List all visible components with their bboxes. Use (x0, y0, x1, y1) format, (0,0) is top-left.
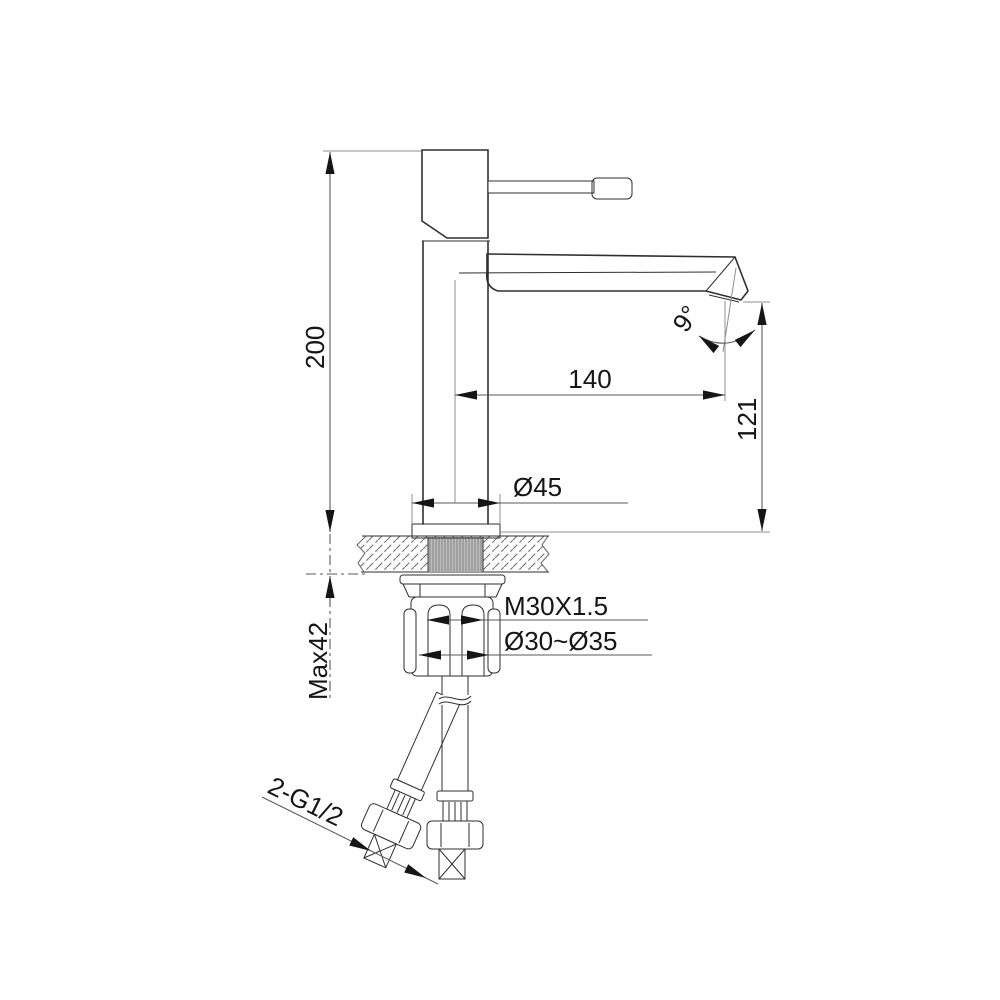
dim-max-thickness: Max42 (303, 534, 368, 700)
hose-hex-nut-right (427, 821, 483, 849)
supply-hose-right (427, 676, 483, 879)
faucet-handle (422, 150, 490, 241)
mounting-nut (404, 597, 500, 676)
faucet-drawing: 200 140 121 9° Ø45 M30X1.5 (0, 0, 1000, 1000)
dim-label-height: 200 (300, 326, 330, 369)
mounting-flange (400, 575, 505, 597)
dim-label-hole-range: Ø30~Ø35 (504, 626, 617, 656)
spout-tip-crease (706, 257, 735, 291)
lever-knob (592, 178, 632, 199)
handle-lever (488, 178, 632, 199)
faucet-spout (459, 254, 748, 302)
dim-label-base-diameter: Ø45 (513, 472, 562, 502)
dim-label-max-thickness: Max42 (303, 622, 333, 700)
dim-label-hose-connection: 2-G1/2 (263, 770, 348, 832)
dim-label-thread-spec: M30X1.5 (504, 591, 608, 621)
threaded-shank (428, 537, 483, 572)
spout-silhouette-line (459, 272, 716, 273)
technical-drawing-canvas: 200 140 121 9° Ø45 M30X1.5 (0, 0, 1000, 1000)
dim-label-spout-height: 121 (732, 398, 762, 441)
dim-label-reach: 140 (568, 364, 611, 394)
dim-label-angle: 9° (666, 300, 705, 338)
dim-height-200: 200 (300, 151, 421, 532)
